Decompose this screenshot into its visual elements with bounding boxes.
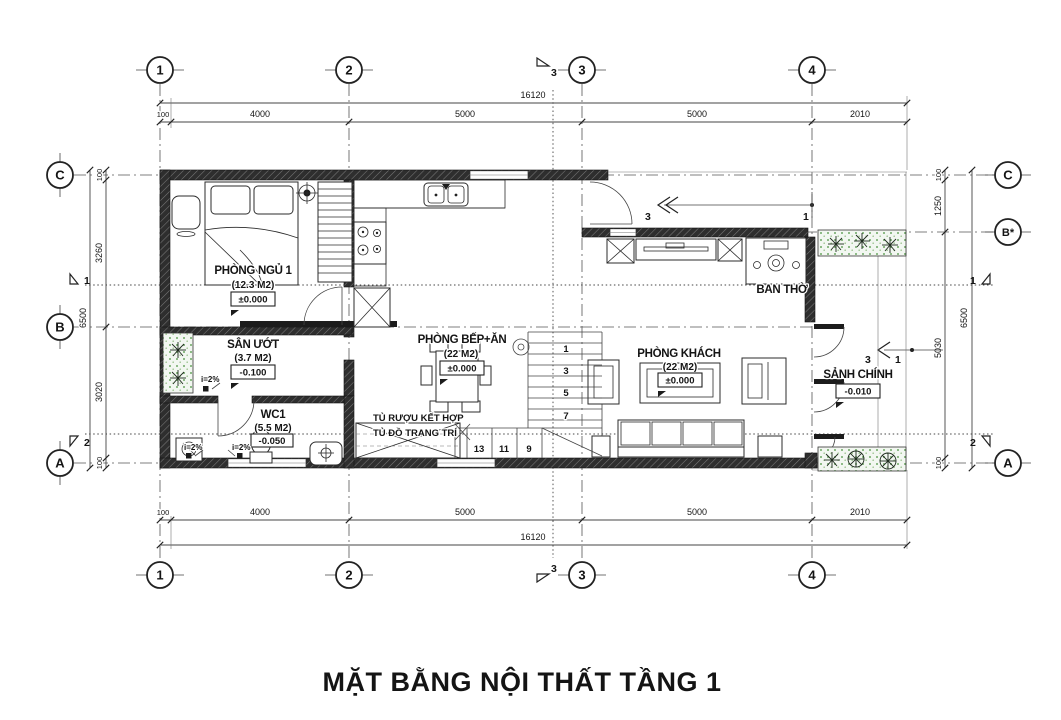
wall-wet-right xyxy=(344,360,354,396)
svg-text:A: A xyxy=(1003,456,1013,471)
svg-text:i=2%: i=2% xyxy=(201,375,219,384)
level-value: ±0.000 xyxy=(448,364,477,375)
svg-text:3: 3 xyxy=(578,63,585,78)
wardrobe xyxy=(318,182,352,282)
svg-text:B: B xyxy=(55,320,64,335)
grid-bubble-4b: 4 xyxy=(788,562,836,588)
level-value: -0.050 xyxy=(259,436,286,447)
svg-text:SÂN ƯỚT: SÂN ƯỚT xyxy=(227,338,279,351)
svg-text:(3.7 M2): (3.7 M2) xyxy=(234,353,271,364)
kitchen-sink xyxy=(424,183,468,206)
svg-text:4: 4 xyxy=(808,63,816,78)
stove-icon xyxy=(354,222,386,264)
svg-text:1: 1 xyxy=(156,568,163,583)
dim-top-seg: 2010 xyxy=(850,109,870,119)
wall-left xyxy=(160,170,170,468)
side-cabinet-right xyxy=(718,239,742,261)
stair-step-number: 9 xyxy=(526,444,531,455)
svg-text:1: 1 xyxy=(895,354,901,366)
svg-text:(22 M2): (22 M2) xyxy=(663,362,697,373)
dim-right-seg: 5030 xyxy=(933,338,943,358)
dim-right-seg: 1250 xyxy=(933,196,943,216)
dimension-lines: 16120 100 4000 5000 5000 2010 16120 100 … xyxy=(78,90,975,549)
drawing-sheet: 16120 100 4000 5000 5000 2010 16120 100 … xyxy=(0,0,1061,720)
dim-left-seg: 3260 xyxy=(94,243,104,263)
dim-bottom-seg: 4000 xyxy=(250,507,270,517)
svg-text:2: 2 xyxy=(345,63,352,78)
svg-text:3: 3 xyxy=(578,568,585,583)
dim-left-overall: 6500 xyxy=(78,308,88,328)
grid-bubble-2: 2 xyxy=(325,57,373,83)
svg-text:C: C xyxy=(55,168,65,183)
grid-bubble-A: A xyxy=(47,441,73,485)
svg-text:3: 3 xyxy=(645,211,651,223)
svg-text:TỦ RƯỢU KẾT HỢP: TỦ RƯỢU KẾT HỢP xyxy=(373,412,464,424)
dim-bottom-seg: 100 xyxy=(157,508,170,517)
svg-text:2: 2 xyxy=(84,437,90,449)
grid-bubble-3b: 3 xyxy=(558,562,606,588)
elevation-ref-hall: 3 1 xyxy=(865,342,943,366)
section-markers: 3 3 1 2 1 2 3 1 3 1 xyxy=(70,58,990,582)
svg-text:3: 3 xyxy=(551,67,557,79)
tv-console xyxy=(636,239,716,260)
ceiling-fan-icon xyxy=(296,182,318,204)
svg-text:2: 2 xyxy=(345,568,352,583)
grid-bubbles: 1 2 3 4 1 2 3 4 C B A C B* A xyxy=(47,57,1031,588)
svg-text:PHÒNG BẾP+ĂN: PHÒNG BẾP+ĂN xyxy=(418,333,507,346)
dim-top-overall: 16120 xyxy=(520,90,545,100)
slope-marker-wet: i=2% xyxy=(201,375,220,392)
svg-text:1: 1 xyxy=(156,63,163,78)
svg-text:TỦ ĐỒ TRANG TRÍ: TỦ ĐỒ TRANG TRÍ xyxy=(373,427,457,439)
dim-bottom-seg: 5000 xyxy=(687,507,707,517)
planter-left xyxy=(163,333,193,393)
window-bottom-stair xyxy=(437,459,495,467)
dim-left-seg: 3020 xyxy=(94,382,104,402)
room-label-altar: BAN THỜ xyxy=(756,283,808,296)
grid-bubble-1: 1 xyxy=(136,57,184,83)
wall-right-front xyxy=(805,453,817,468)
stair-step-number: 5 xyxy=(563,388,569,399)
floor-plan-canvas: 16120 100 4000 5000 5000 2010 16120 100 … xyxy=(0,0,1061,720)
section-marker-2-left: 2 xyxy=(70,436,90,449)
svg-text:2: 2 xyxy=(970,437,976,449)
dim-right-overall: 6500 xyxy=(959,308,969,328)
grid-bubble-C: C xyxy=(47,153,73,197)
stair-step-number: 1 xyxy=(563,344,569,355)
grid-bubble-Bstar-right: B* xyxy=(985,219,1031,245)
window-bstar xyxy=(610,229,636,236)
grid-axes xyxy=(74,84,995,560)
door-kitchen-rear xyxy=(590,182,632,224)
dim-right-seg: 100 xyxy=(934,169,943,182)
level-value: -0.100 xyxy=(240,368,267,379)
grid-bubble-4: 4 xyxy=(788,57,836,83)
grid-bubble-B: B xyxy=(47,305,73,349)
svg-text:i=2%: i=2% xyxy=(232,443,250,452)
svg-text:B*: B* xyxy=(1002,227,1015,239)
stair-step-number: 11 xyxy=(499,444,510,455)
grid-bubble-3: 3 xyxy=(558,57,606,83)
section-marker-3-top: 3 xyxy=(537,58,557,79)
room-label-wc: WC1 (5.5 M2) -0.050 xyxy=(251,409,293,447)
wall-wc-north xyxy=(160,396,218,403)
room-label-wet-area: SÂN ƯỚT (3.7 M2) -0.100 xyxy=(227,338,279,389)
level-value: ±0.000 xyxy=(239,295,268,306)
door-bedroom xyxy=(304,287,342,325)
dim-left-seg: 100 xyxy=(95,169,104,182)
stair-step-number: 7 xyxy=(563,411,568,422)
svg-text:i=2%: i=2% xyxy=(184,443,202,452)
svg-text:1: 1 xyxy=(84,275,90,287)
slope-markers: i=2% i=2% i=2% xyxy=(184,375,250,459)
svg-text:PHÒNG NGỦ 1: PHÒNG NGỦ 1 xyxy=(214,264,292,277)
dim-top-seg: 4000 xyxy=(250,109,270,119)
room-label-hall: SẢNH CHÍNH -0.010 xyxy=(823,368,892,408)
nightstand xyxy=(172,196,200,237)
dim-top-seg: 100 xyxy=(157,110,170,119)
level-value: -0.010 xyxy=(845,387,872,398)
svg-text:1: 1 xyxy=(803,211,809,223)
stair-step-number: 3 xyxy=(563,366,568,377)
svg-text:3: 3 xyxy=(865,354,871,366)
level-value: ±0.000 xyxy=(666,376,695,387)
dim-left-seg: 100 xyxy=(95,457,104,470)
section-marker-2-right: 2 xyxy=(970,436,990,449)
grid-bubble-C-right: C xyxy=(985,162,1031,188)
svg-text:3: 3 xyxy=(551,563,557,575)
wall-wc-north xyxy=(252,396,344,403)
door-wc xyxy=(218,400,254,436)
fridge xyxy=(354,288,390,327)
grid-bubble-2b: 2 xyxy=(325,562,373,588)
slope-marker-wc2: i=2% xyxy=(228,443,250,459)
wall-wc-right xyxy=(344,396,354,468)
svg-text:1: 1 xyxy=(970,275,976,287)
dim-bottom-seg: 2010 xyxy=(850,507,870,517)
room-label-bedroom: PHÒNG NGỦ 1 (12.3 M2) ±0.000 xyxy=(214,264,292,316)
planter-bottom-right xyxy=(818,447,906,471)
svg-text:SẢNH CHÍNH: SẢNH CHÍNH xyxy=(823,368,892,381)
svg-text:A: A xyxy=(55,456,65,471)
section-marker-1-left: 1 xyxy=(70,274,90,287)
side-cabinet-left xyxy=(607,239,634,263)
window-top xyxy=(470,171,528,179)
svg-text:WC1: WC1 xyxy=(261,409,287,421)
grid-bubble-1b: 1 xyxy=(136,562,184,588)
drawing-title: MẶT BẰNG NỘI THẤT TẦNG 1 xyxy=(323,666,722,697)
dim-bottom-overall: 16120 xyxy=(520,532,545,542)
svg-text:(5.5 M2): (5.5 M2) xyxy=(254,423,291,434)
lavabo xyxy=(310,442,342,465)
section-marker-3-bottom: 3 xyxy=(537,563,557,582)
section-cut-lines xyxy=(85,90,995,558)
svg-text:(22 M2): (22 M2) xyxy=(444,349,478,360)
altar-cabinet xyxy=(746,238,806,284)
stair-step-number: 13 xyxy=(474,444,485,455)
dim-right-seg: 100 xyxy=(934,457,943,470)
doors xyxy=(218,182,844,458)
svg-text:(12.3 M2): (12.3 M2) xyxy=(232,280,275,291)
dim-top-seg: 5000 xyxy=(687,109,707,119)
planter-top-right xyxy=(818,230,906,256)
svg-text:C: C xyxy=(1003,168,1013,183)
wall-top xyxy=(160,170,608,180)
svg-text:4: 4 xyxy=(808,568,816,583)
dim-top-seg: 5000 xyxy=(455,109,475,119)
grid-bubble-A-right: A xyxy=(985,450,1031,476)
dim-bottom-seg: 5000 xyxy=(455,507,475,517)
svg-text:PHÒNG KHÁCH: PHÒNG KHÁCH xyxy=(637,347,721,360)
elevation-ref-upper: 3 1 xyxy=(645,192,814,223)
